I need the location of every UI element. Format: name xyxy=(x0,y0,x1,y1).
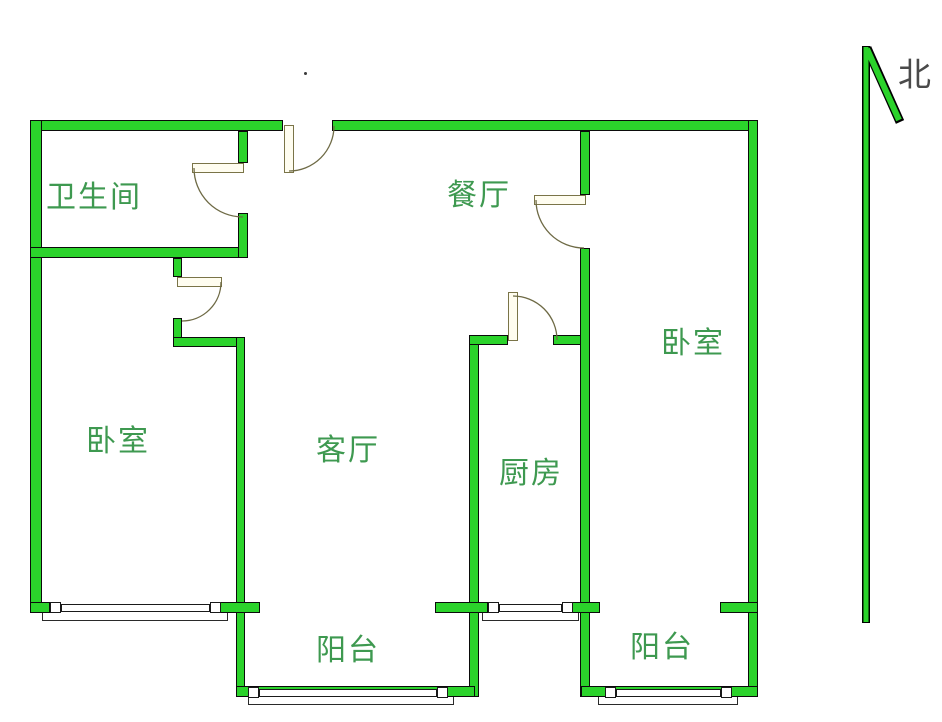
door-arc-bathroom xyxy=(194,168,243,217)
room-label-dining: 餐厅 xyxy=(447,181,511,211)
wall-bedroom-left-entry-upper xyxy=(173,258,182,277)
room-label-bedroom-right: 卧室 xyxy=(661,329,725,359)
wall-bedroom-left-top xyxy=(173,337,245,347)
room-label-balcony-right: 阳台 xyxy=(630,633,694,663)
window-sill-kitchen xyxy=(482,613,579,621)
door-leaf-kitchen xyxy=(508,292,518,341)
door-leaf-dining xyxy=(534,195,586,205)
window-sill-balcony-right xyxy=(598,697,738,705)
room-label-kitchen: 厨房 xyxy=(499,459,563,489)
window-balcony-middle xyxy=(259,689,437,697)
door-arc-kitchen xyxy=(513,296,557,340)
room-label-balcony-middle: 阳台 xyxy=(316,636,380,666)
door-leaf-bedroom-left xyxy=(177,277,222,287)
wall-bedroom-right-bottom-stub xyxy=(720,602,758,613)
window-sill-bedroom-left xyxy=(42,613,228,621)
north-label: 北 xyxy=(898,60,931,93)
wall-top-right xyxy=(332,120,758,131)
wall-bathroom-right-lower xyxy=(238,213,248,258)
wall-bathroom-bottom xyxy=(30,247,248,258)
wall-outer-left xyxy=(30,120,42,612)
window-frame-end xyxy=(210,602,221,613)
window-kitchen xyxy=(499,604,562,612)
wall-bedroom-left-bottom-corner xyxy=(30,602,50,613)
north-arrow-icon xyxy=(866,46,900,623)
wall-kitchen-top-left xyxy=(469,335,508,345)
wall-bathroom-right-upper xyxy=(238,131,248,163)
door-arc-entry xyxy=(289,126,334,171)
wall-dining-right-upper xyxy=(580,131,590,195)
wall-top-left xyxy=(30,120,283,131)
floor-plan: 卫生间 餐厅 卧室 卧室 客厅 厨房 阳台 阳台 北 xyxy=(0,0,942,722)
door-arc-bedroom-left xyxy=(182,282,221,321)
room-label-living: 客厅 xyxy=(316,436,380,466)
window-frame-end xyxy=(721,687,732,698)
wall-living-bottom-left xyxy=(435,602,488,613)
window-frame-end xyxy=(437,687,448,698)
window-frame-end xyxy=(50,602,61,613)
window-balcony-right xyxy=(616,689,721,697)
wall-dining-right-lower xyxy=(580,248,590,697)
window-frame-end xyxy=(605,687,616,698)
wall-divider-living-kitchen xyxy=(469,335,479,697)
window-sill-balcony-middle xyxy=(248,697,454,705)
window-frame-end xyxy=(248,687,259,698)
stray-dot xyxy=(304,72,307,75)
room-label-bedroom-left: 卧室 xyxy=(86,427,150,457)
door-arc-dining xyxy=(536,200,584,248)
window-frame-end xyxy=(488,602,499,613)
door-leaf-entry xyxy=(284,125,294,173)
wall-divider-bedroom-living xyxy=(236,337,245,697)
wall-kitchen-bottom-right xyxy=(572,602,600,613)
window-frame-end xyxy=(562,602,573,613)
room-label-bathroom: 卫生间 xyxy=(46,183,142,213)
door-leaf-bathroom xyxy=(192,163,244,173)
wall-bedroom-left-bottom-right xyxy=(218,602,260,613)
window-bedroom-left xyxy=(61,604,210,612)
